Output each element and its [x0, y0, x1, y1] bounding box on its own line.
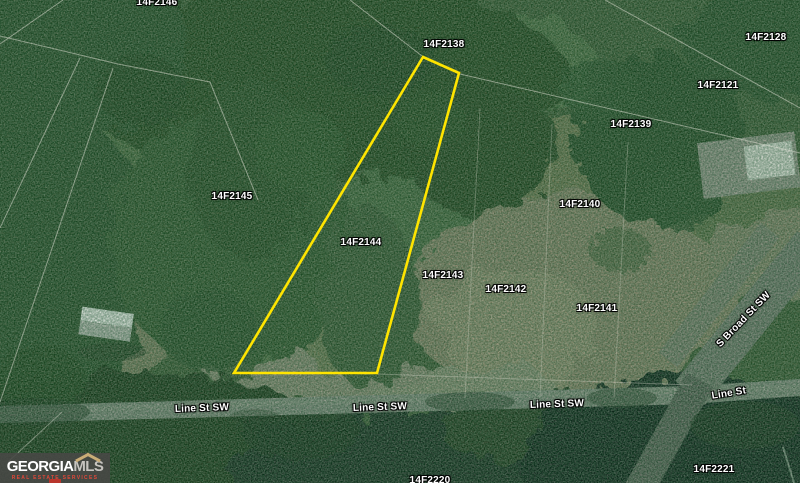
parcel-label: 14F2221 [694, 465, 735, 475]
street-label: Line St SW [353, 402, 408, 414]
logo-red-chip [49, 479, 61, 483]
street-label: Line St SW [175, 403, 230, 415]
georgia-mls-logo: GEORGIAMLS REAL ESTATE SERVICES [0, 453, 110, 483]
house-roof-icon [75, 453, 101, 461]
parcel-label: 14F2146 [137, 0, 178, 8]
parcel-label: 14F2138 [424, 40, 465, 50]
map-canvas[interactable]: 14F2146 14F2138 14F2128 14F2121 14F2139 … [0, 0, 800, 483]
parcel-label: 14F2220 [410, 476, 451, 483]
logo-wordmark: GEORGIAMLS [7, 459, 104, 474]
logo-text-georgia: GEORGIA [7, 459, 74, 474]
parcel-label: 14F2140 [560, 200, 601, 210]
parcel-label: 14F2145 [212, 192, 253, 202]
parcel-label: 14F2128 [746, 33, 787, 43]
parcel-label: 14F2139 [611, 120, 652, 130]
street-label: Line St SW [530, 399, 585, 411]
parcel-label-highlighted: 14F2144 [341, 238, 382, 248]
parcel-label: 14F2141 [577, 304, 618, 314]
parcel-label: 14F2121 [698, 81, 739, 91]
parcel-label: 14F2142 [486, 285, 527, 295]
parcel-label: 14F2143 [423, 271, 464, 281]
